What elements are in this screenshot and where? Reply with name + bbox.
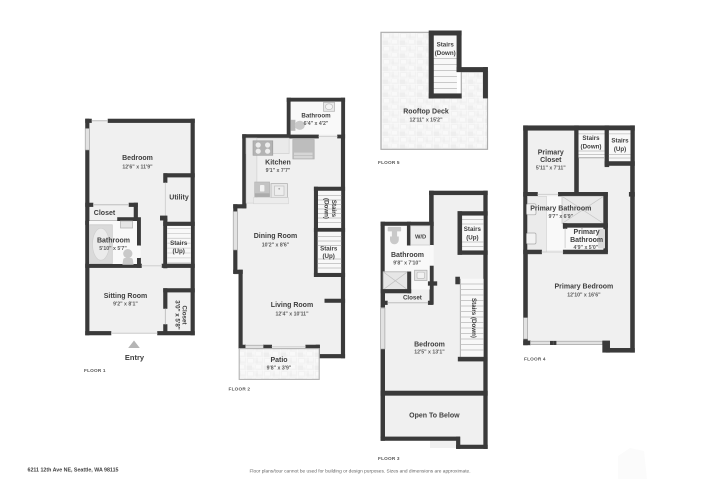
svg-text:Patio: Patio xyxy=(270,357,287,364)
svg-text:Sitting Room: Sitting Room xyxy=(104,293,148,300)
svg-text:Stairs (Down): Stairs (Down) xyxy=(470,298,477,338)
svg-text:W/D: W/D xyxy=(415,234,426,240)
svg-text:(Down): (Down) xyxy=(435,50,456,57)
svg-text:12'10" x 16'6": 12'10" x 16'6" xyxy=(567,292,601,298)
svg-text:Bathroom: Bathroom xyxy=(97,238,130,245)
svg-text:FLOOR 3: FLOOR 3 xyxy=(378,456,400,461)
svg-text:Dining Room: Dining Room xyxy=(254,233,298,240)
svg-text:Bathroom: Bathroom xyxy=(391,252,424,259)
svg-text:(Up): (Up) xyxy=(466,234,478,241)
svg-text:9'8" x 3'9": 9'8" x 3'9" xyxy=(267,365,292,371)
svg-text:(Down): (Down) xyxy=(581,144,602,151)
svg-text:Stairs: Stairs xyxy=(437,42,455,49)
svg-text:Stairs: Stairs xyxy=(320,246,338,253)
svg-text:Stairs: Stairs xyxy=(170,240,188,247)
svg-text:9'2" x 8'1": 9'2" x 8'1" xyxy=(113,302,138,308)
svg-text:12'6" x 11'9": 12'6" x 11'9" xyxy=(122,164,153,170)
svg-text:FLOOR 5: FLOOR 5 xyxy=(378,160,400,165)
svg-text:Bedroom: Bedroom xyxy=(122,155,153,162)
svg-text:FLOOR 1: FLOOR 1 xyxy=(84,368,106,373)
svg-text:Floor plans/tour cannot be use: Floor plans/tour cannot be used for buil… xyxy=(249,468,470,474)
svg-text:9'7" x 6'9": 9'7" x 6'9" xyxy=(548,214,573,220)
svg-text:Kitchen: Kitchen xyxy=(265,160,291,167)
svg-text:Closet: Closet xyxy=(540,157,562,164)
svg-text:Stairs: Stairs xyxy=(464,226,482,233)
svg-text:FLOOR 4: FLOOR 4 xyxy=(524,357,546,362)
svg-text:Stairs: Stairs xyxy=(582,135,600,142)
svg-text:Bathroom: Bathroom xyxy=(570,237,603,244)
svg-text:(Up): (Up) xyxy=(173,248,185,255)
svg-text:Entry: Entry xyxy=(125,353,145,362)
svg-text:Living Room: Living Room xyxy=(271,302,313,309)
svg-text:12'11" x 15'2": 12'11" x 15'2" xyxy=(409,118,443,124)
svg-text:5'11" x 7'11": 5'11" x 7'11" xyxy=(536,165,566,171)
svg-text:Primary: Primary xyxy=(574,229,600,236)
svg-text:9'8" x 7'10": 9'8" x 7'10" xyxy=(393,260,421,266)
svg-text:9'1" x 7'7": 9'1" x 7'7" xyxy=(266,168,291,174)
svg-text:Utility: Utility xyxy=(169,195,189,202)
svg-text:Open To Below: Open To Below xyxy=(409,412,460,419)
svg-text:Bathroom: Bathroom xyxy=(301,113,331,120)
svg-text:(Up): (Up) xyxy=(323,253,335,260)
svg-text:Rooftop Deck: Rooftop Deck xyxy=(403,109,449,116)
svg-text:(Up): (Up) xyxy=(614,146,626,153)
svg-text:6'4" x 4'2": 6'4" x 4'2" xyxy=(304,121,329,127)
svg-text:12'5" x 13'1": 12'5" x 13'1" xyxy=(414,349,445,355)
svg-text:Stairs(Down): Stairs(Down) xyxy=(323,198,337,219)
svg-text:6211 12th Ave NE, Seattle, WA: 6211 12th Ave NE, Seattle, WA 98115 xyxy=(28,468,119,474)
svg-text:12'4" x 10'11": 12'4" x 10'11" xyxy=(275,311,309,317)
svg-text:FLOOR 2: FLOOR 2 xyxy=(229,387,251,392)
svg-text:Closet: Closet xyxy=(403,294,422,301)
svg-text:Primary Bedroom: Primary Bedroom xyxy=(555,283,614,290)
svg-text:Primary: Primary xyxy=(538,150,564,157)
svg-text:Closet: Closet xyxy=(94,210,116,217)
svg-text:10'2" x 8'6": 10'2" x 8'6" xyxy=(262,242,290,248)
svg-text:Stairs: Stairs xyxy=(611,138,629,145)
svg-text:Primary Bathroom: Primary Bathroom xyxy=(530,206,591,213)
svg-text:Bedroom: Bedroom xyxy=(414,341,445,348)
svg-text:5'10" x 5'7": 5'10" x 5'7" xyxy=(99,246,127,252)
